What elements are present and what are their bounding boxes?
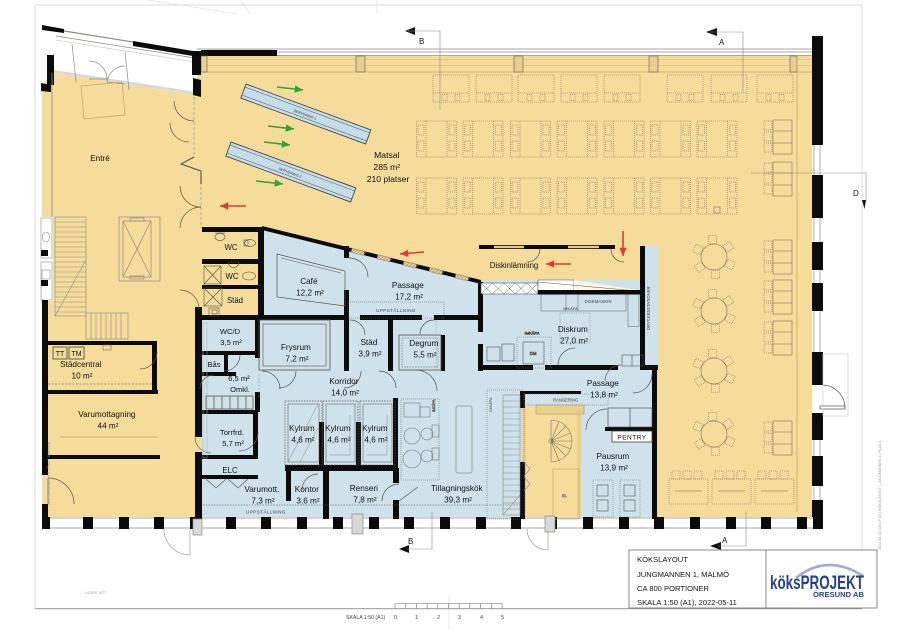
svg-text:KÖKSLAYOUT: KÖKSLAYOUT (637, 555, 688, 564)
svg-text:PENTRY: PENTRY (617, 435, 646, 442)
svg-text:A01 - Jungmannen 1 - Plan 1 Ut: A01 - Jungmannen 1 - Plan 1 Utdelning (47, 442, 51, 505)
svg-text:ÖRESUND AB: ÖRESUND AB (813, 590, 864, 599)
svg-text:RANGERING: RANGERING (553, 398, 578, 403)
svg-text:IMKÅPA: IMKÅPA (431, 399, 436, 412)
svg-text:UPPSTÄLLNING: UPPSTÄLLNING (376, 307, 416, 313)
svg-text:CA 800 PORTIONER: CA 800 PORTIONER (637, 584, 710, 593)
svg-text:JUNGMANNEN 1, MALMÖ: JUNGMANNEN 1, MALMÖ (637, 570, 729, 579)
svg-text:Diskinlämning: Diskinlämning (490, 261, 539, 270)
svg-text:IMKÅPA: IMKÅPA (563, 306, 578, 311)
svg-text:LAGER 1977: LAGER 1977 (85, 591, 106, 595)
svg-text:3: 3 (458, 615, 461, 621)
svg-text:2022-05-11 | A01-P-51 | KÖ: 2022-05-11 | A01-P-51 | KÖKSLAYOUT | JUN… (878, 440, 882, 550)
svg-text:D: D (853, 189, 859, 198)
svg-text:A: A (722, 536, 728, 545)
svg-text:B: B (419, 37, 424, 46)
svg-text:B: B (408, 537, 413, 546)
svg-text:Städ: Städ (227, 296, 243, 305)
svg-text:1: 1 (415, 615, 418, 621)
svg-text:köksPROJEKT: köksPROJEKT (770, 573, 864, 594)
svg-text:UPPSTÄLLNING: UPPSTÄLLNING (246, 509, 286, 515)
svg-text:Entré: Entré (90, 154, 110, 163)
svg-text:DISKMASKIN: DISKMASKIN (584, 299, 611, 304)
svg-text:IMKÅPA: IMKÅPA (525, 331, 540, 336)
svg-text:A: A (719, 38, 725, 47)
svg-text:WC: WC (225, 243, 238, 252)
svg-text:SKALA 1:50 (A1), 2022-05-11: SKALA 1:50 (A1), 2022-05-11 (637, 598, 737, 607)
svg-text:ELC: ELC (222, 466, 238, 475)
svg-text:WC: WC (226, 272, 239, 281)
svg-text:IMKÅPA: IMKÅPA (488, 397, 493, 412)
svg-text:TT: TT (56, 351, 65, 358)
svg-text:5: 5 (501, 615, 504, 621)
svg-text:TM: TM (71, 351, 81, 358)
svg-text:4: 4 (480, 615, 483, 621)
svg-text:DRYCKESSTATIONER: DRYCKESSTATIONER (646, 286, 651, 330)
svg-text:Bås: Bås (207, 360, 220, 369)
svg-text:EL: EL (562, 493, 568, 498)
svg-text:SKALA 1:50 (A1): SKALA 1:50 (A1) (346, 615, 385, 621)
svg-text:DM: DM (530, 351, 537, 356)
svg-text:2: 2 (437, 615, 440, 621)
svg-text:0: 0 (394, 615, 397, 621)
